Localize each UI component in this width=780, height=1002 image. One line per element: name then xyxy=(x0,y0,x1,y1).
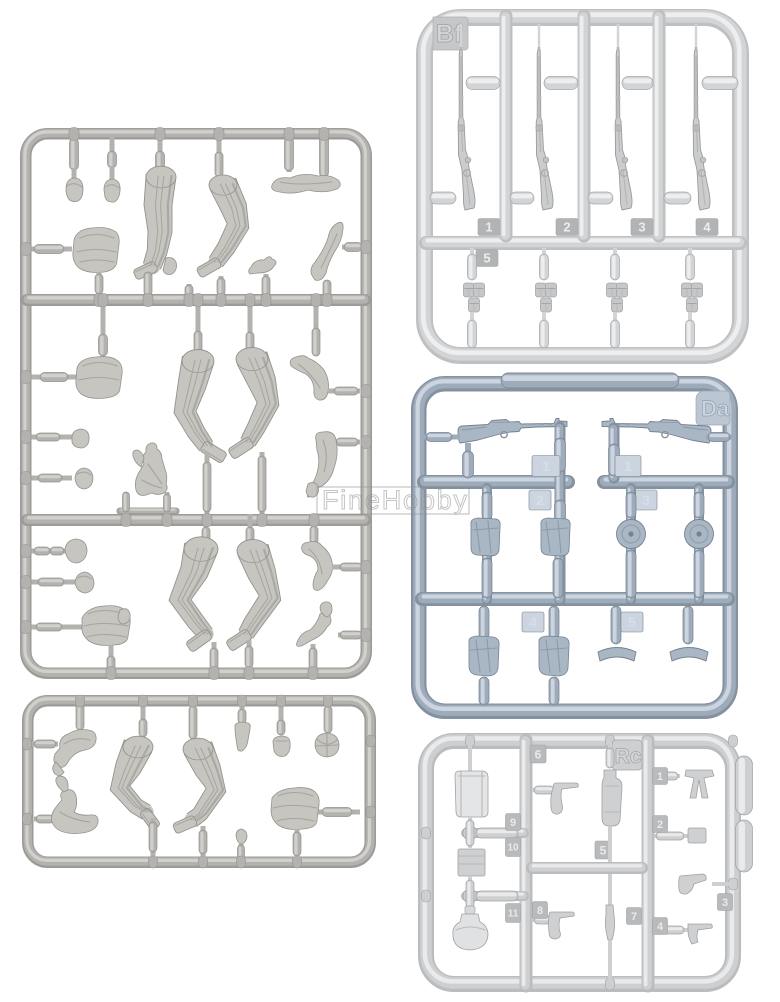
svg-text:8: 8 xyxy=(537,905,543,917)
svg-text:Rc: Rc xyxy=(615,745,642,768)
svg-text:1: 1 xyxy=(542,458,550,474)
svg-text:2: 2 xyxy=(563,220,570,235)
svg-text:11: 11 xyxy=(508,909,519,920)
svg-text:2: 2 xyxy=(536,492,544,508)
svg-text:Da: Da xyxy=(701,396,730,421)
svg-text:2: 2 xyxy=(657,819,663,831)
svg-text:1: 1 xyxy=(657,771,663,783)
svg-text:4: 4 xyxy=(657,921,664,933)
svg-text:4: 4 xyxy=(703,220,711,235)
svg-text:FineHobby: FineHobby xyxy=(322,485,468,515)
svg-text:1: 1 xyxy=(485,220,492,235)
svg-text:5: 5 xyxy=(600,843,607,857)
svg-text:3: 3 xyxy=(642,492,650,508)
svg-text:5: 5 xyxy=(483,251,490,266)
svg-text:10: 10 xyxy=(507,843,519,854)
svg-text:3: 3 xyxy=(638,220,645,235)
svg-text:1: 1 xyxy=(624,458,632,474)
svg-text:4: 4 xyxy=(529,614,537,630)
svg-text:6: 6 xyxy=(535,747,542,761)
svg-text:3: 3 xyxy=(722,897,728,909)
svg-text:7: 7 xyxy=(631,911,637,923)
svg-text:5: 5 xyxy=(628,614,636,630)
svg-text:Bf: Bf xyxy=(436,20,463,48)
svg-text:9: 9 xyxy=(510,817,516,829)
